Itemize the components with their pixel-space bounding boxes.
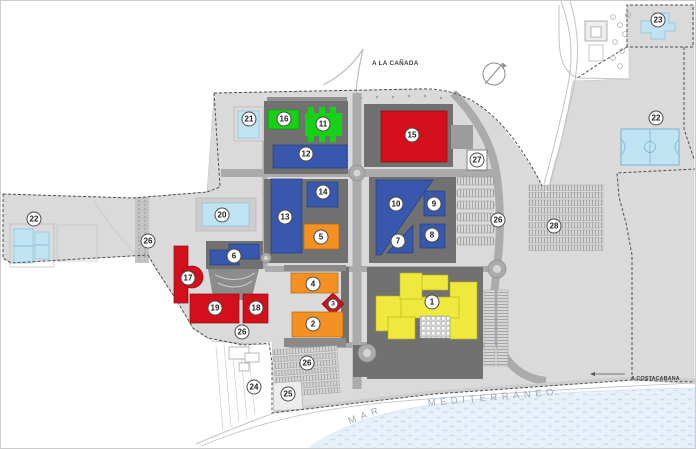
- building-5: [304, 224, 339, 249]
- road-label-east: A COSTACABANA: [631, 376, 680, 382]
- building-12: [273, 145, 347, 168]
- building-14: [307, 182, 338, 207]
- court-22-west-b: [35, 232, 49, 259]
- compass-icon: [483, 63, 507, 85]
- facility-27-pad: [467, 150, 487, 170]
- building-near-27: [451, 125, 473, 149]
- parking-lot-28: [529, 185, 603, 251]
- map-canvas: A LA CAÑADA A COSTACABANA MAR MEDITERRÁN…: [1, 1, 696, 449]
- building-13: [271, 179, 302, 253]
- building-16: [268, 110, 299, 129]
- pool-20: [202, 203, 249, 226]
- building-4: [291, 273, 338, 293]
- campus-map: A LA CAÑADA A COSTACABANA MAR MEDITERRÁN…: [0, 0, 696, 449]
- farm-buildings: [585, 13, 630, 69]
- building-9: [424, 191, 445, 216]
- building-15: [381, 111, 447, 162]
- building-19: [190, 294, 239, 323]
- building-2: [292, 312, 343, 337]
- building-8: [420, 224, 445, 248]
- pool-21: [238, 111, 259, 138]
- building-18: [243, 294, 268, 323]
- tree-lane: [135, 197, 149, 263]
- road-label-north: A LA CAÑADA: [372, 58, 419, 67]
- courtyard-grid: [420, 316, 450, 338]
